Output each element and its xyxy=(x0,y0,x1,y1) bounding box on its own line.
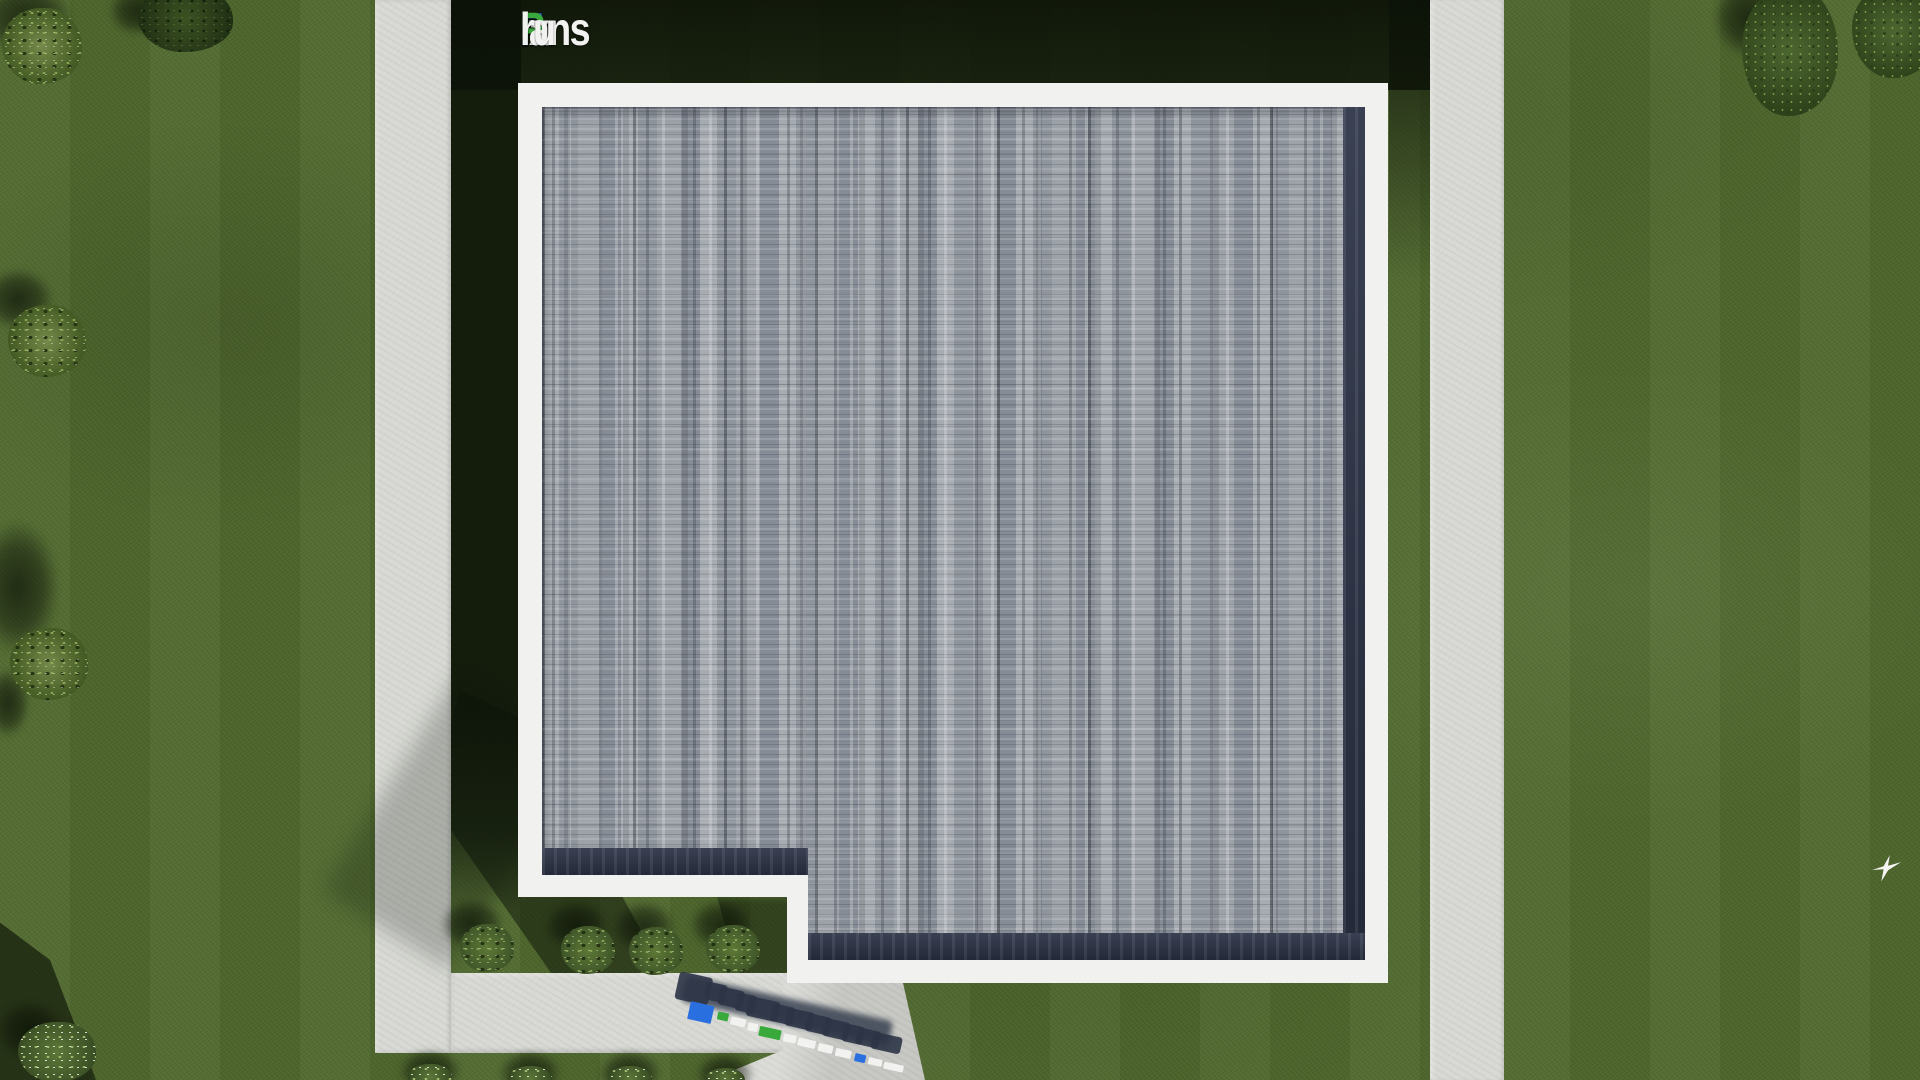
right-path xyxy=(1430,0,1504,1080)
tree-top-left-1 xyxy=(2,8,82,84)
notch-garden-bush-1 xyxy=(460,924,514,972)
ground-letter-slab xyxy=(687,1001,714,1024)
tree-left-lower xyxy=(10,628,88,700)
ground-letter-slab xyxy=(758,1026,782,1041)
ground-letter-slab xyxy=(883,1062,904,1073)
flower-bush-bottom-left xyxy=(18,1022,96,1080)
roof-texture-overlay xyxy=(542,107,1365,960)
ground-letter-slab xyxy=(783,1033,797,1044)
house-parapet xyxy=(518,83,1388,983)
flat-roof-shingles xyxy=(542,107,1365,960)
ground-letter-slab xyxy=(835,1048,852,1059)
roof-edge-navy-southwest xyxy=(542,848,808,875)
ground-letter-slab xyxy=(797,1037,816,1049)
ground-letter-slab xyxy=(717,1011,729,1021)
notch-garden-bush-3 xyxy=(629,927,683,975)
tree-top-right-1 xyxy=(1742,0,1838,116)
tree-left-middle xyxy=(8,305,86,377)
notch-garden-bush-4 xyxy=(706,925,760,973)
ground-letter-slab xyxy=(730,1016,746,1027)
notch-garden-bush-2 xyxy=(561,926,615,974)
ground-letter-slab xyxy=(868,1057,883,1067)
bottom-bush-1 xyxy=(408,1064,452,1080)
roof-edge-navy-southeast xyxy=(808,933,1365,960)
aerial-render: FixPlans.ru xyxy=(0,0,1920,1080)
roof-edge-navy-right xyxy=(1343,107,1365,960)
ground-letter-slab xyxy=(817,1043,833,1054)
house-shadow-north xyxy=(451,0,1433,90)
house-shadow-east xyxy=(1389,0,1431,280)
logo-part-ru: ru xyxy=(520,5,554,53)
ground-letter-slab xyxy=(854,1053,866,1063)
ground-letter-slab xyxy=(747,1022,758,1032)
